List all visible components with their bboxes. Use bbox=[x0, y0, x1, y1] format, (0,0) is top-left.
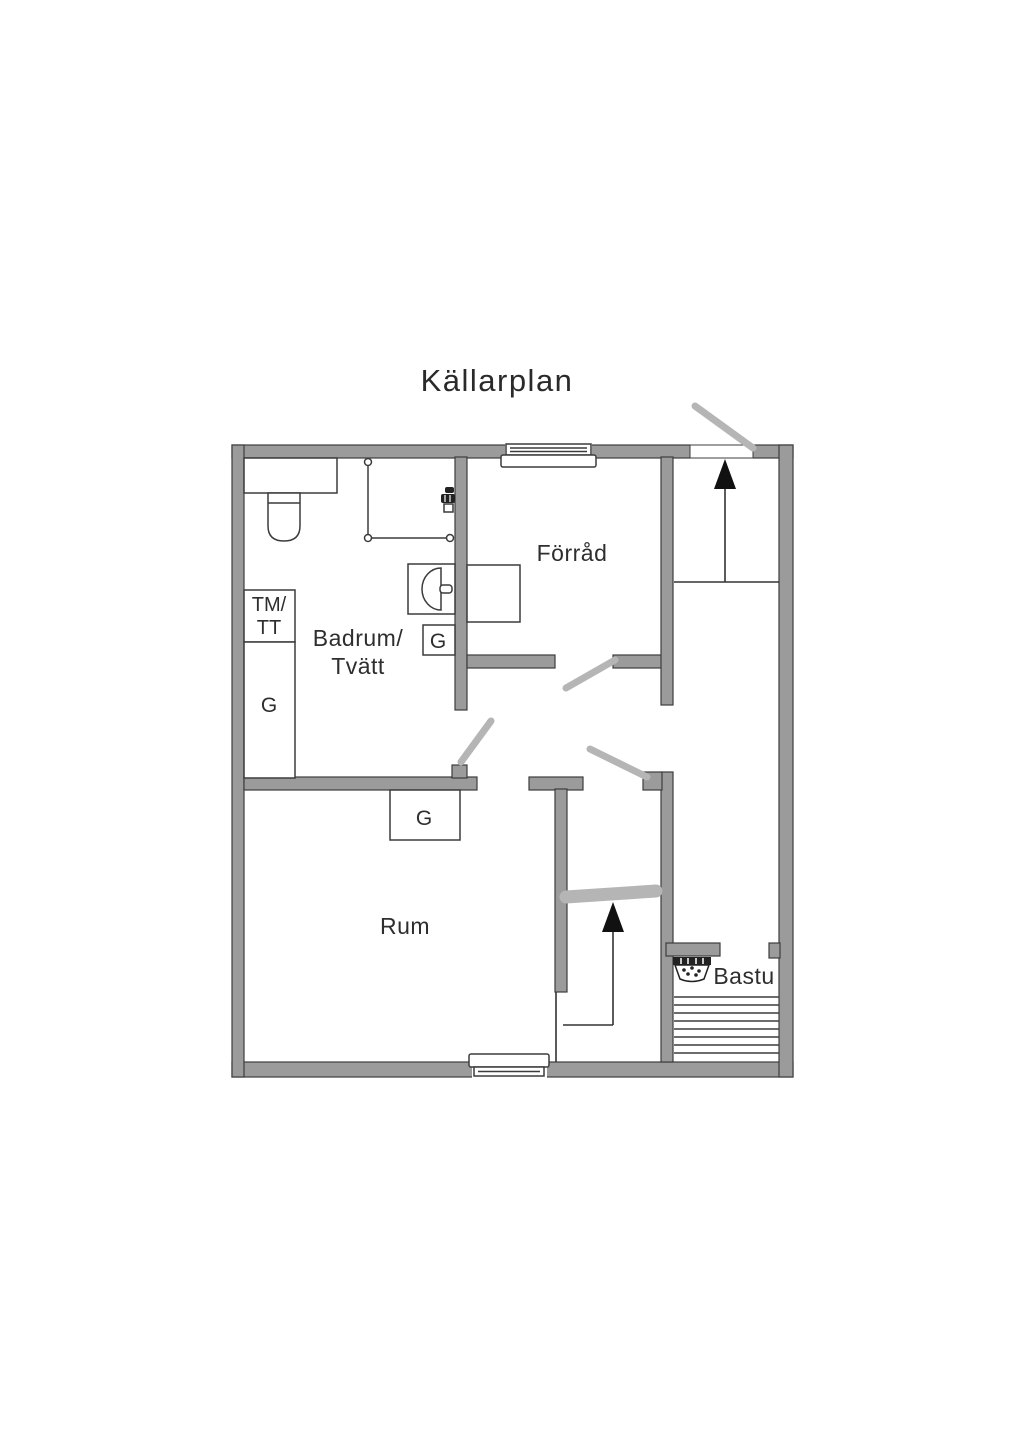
closet-label-tt: TT bbox=[257, 617, 281, 639]
floor-plan-page: Källarplan bbox=[0, 0, 1024, 1448]
room-label-bastu: Bastu bbox=[713, 963, 774, 989]
outer-wall-right bbox=[779, 445, 793, 1077]
window-icon-bottom bbox=[469, 1054, 549, 1078]
walls bbox=[232, 445, 793, 1077]
wall-stair-west bbox=[555, 789, 567, 992]
room-label-rum: Rum bbox=[380, 913, 430, 939]
page-title: Källarplan bbox=[421, 363, 574, 398]
wall-bathroom-south bbox=[244, 777, 477, 790]
bathroom-counter bbox=[244, 458, 337, 493]
door-leaf-bathroom bbox=[461, 721, 491, 762]
toilet-icon bbox=[268, 493, 300, 541]
room-label-forrad: Förråd bbox=[537, 540, 608, 566]
sauna-heater-icon bbox=[673, 957, 711, 982]
wall-stair-east bbox=[661, 772, 673, 1062]
floor-plan-drawing: Källarplan bbox=[0, 0, 1024, 1448]
outer-wall-left bbox=[232, 445, 244, 1077]
wall-bathroom-forrad bbox=[455, 457, 467, 710]
wall-bathroom-door-stub bbox=[452, 765, 467, 778]
door-leaf-under-stairs bbox=[566, 891, 656, 897]
entrance-threshold bbox=[690, 445, 753, 458]
window-icon-top bbox=[501, 444, 596, 468]
closet-label-g-rum: G bbox=[416, 807, 432, 830]
wall-bastu-north-stub bbox=[769, 943, 780, 958]
closet-label-tm: TM/ bbox=[252, 594, 287, 616]
wall-hall-t-top bbox=[529, 777, 583, 790]
sauna-benches bbox=[674, 997, 779, 1053]
wall-forrad-east bbox=[661, 457, 673, 705]
door-leaf-entrance bbox=[695, 406, 753, 448]
door-leaf-forrad bbox=[566, 660, 615, 688]
door-leaf-stair-hall bbox=[590, 749, 647, 777]
shower-enclosure bbox=[365, 459, 454, 542]
stairs-up-arrow-upper bbox=[674, 459, 779, 582]
room-label-badrum-line2: Tvätt bbox=[331, 653, 385, 679]
closet-label-g-left: G bbox=[261, 694, 277, 717]
wall-forrad-south bbox=[467, 655, 555, 668]
wall-forrad-south-stub bbox=[613, 655, 662, 668]
shower-mixer-icon bbox=[441, 487, 455, 512]
closet-label-g-bathroom: G bbox=[430, 630, 446, 653]
sink-icon bbox=[408, 564, 455, 614]
wall-bastu-north bbox=[666, 943, 720, 956]
shelf-forrad bbox=[467, 565, 520, 622]
room-label-badrum-line1: Badrum/ bbox=[313, 625, 404, 651]
